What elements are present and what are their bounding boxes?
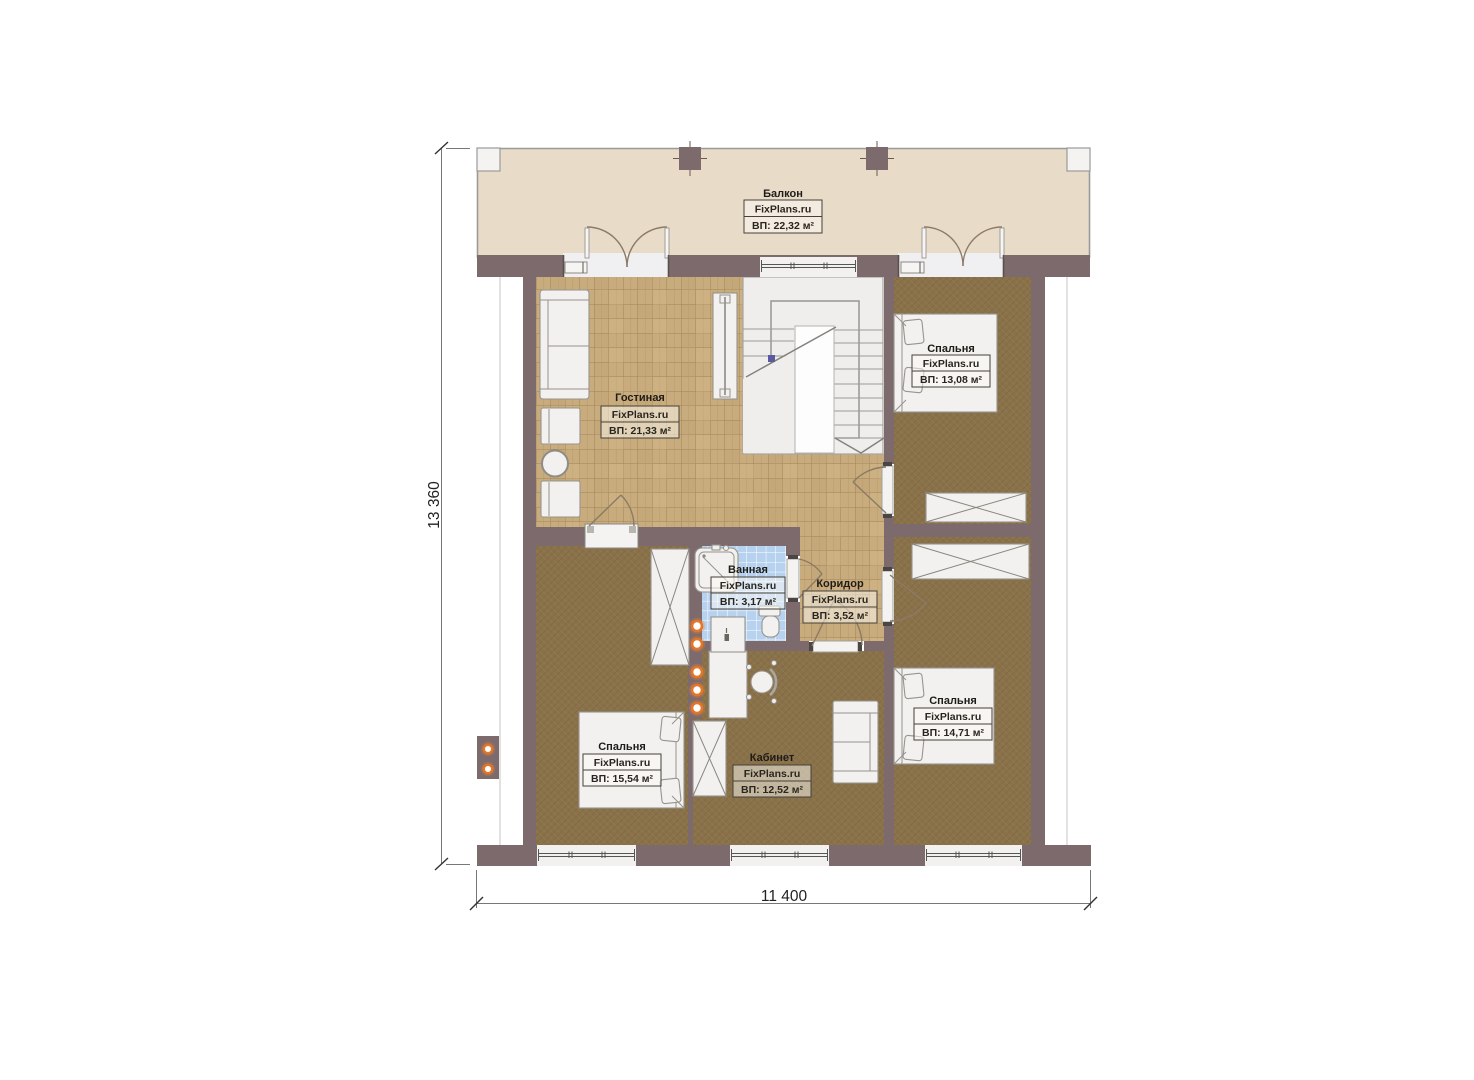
svg-text:Гостиная: Гостиная — [615, 392, 665, 404]
svg-text:ВП: 3,17 м²: ВП: 3,17 м² — [720, 596, 777, 608]
svg-text:Балкон: Балкон — [763, 188, 803, 200]
svg-text:FixPlans.ru: FixPlans.ru — [594, 757, 651, 769]
svg-text:Коридор: Коридор — [816, 578, 864, 590]
svg-text:ВП: 13,08 м²: ВП: 13,08 м² — [920, 374, 983, 386]
svg-text:FixPlans.ru: FixPlans.ru — [612, 409, 669, 421]
svg-text:ВП: 21,33 м²: ВП: 21,33 м² — [609, 425, 672, 437]
svg-text:FixPlans.ru: FixPlans.ru — [744, 768, 801, 780]
svg-text:ВП: 12,52 м²: ВП: 12,52 м² — [741, 784, 804, 796]
svg-text:FixPlans.ru: FixPlans.ru — [925, 711, 982, 723]
svg-text:FixPlans.ru: FixPlans.ru — [720, 580, 777, 592]
svg-text:Спальня: Спальня — [598, 741, 646, 753]
svg-text:FixPlans.ru: FixPlans.ru — [755, 204, 812, 216]
svg-text:13 360: 13 360 — [426, 481, 443, 529]
svg-text:11 400: 11 400 — [761, 888, 808, 905]
svg-text:FixPlans.ru: FixPlans.ru — [923, 358, 980, 370]
svg-text:FixPlans.ru: FixPlans.ru — [812, 594, 869, 606]
svg-text:ВП: 3,52 м²: ВП: 3,52 м² — [812, 610, 869, 622]
svg-text:ВП: 15,54 м²: ВП: 15,54 м² — [591, 773, 654, 785]
svg-text:Кабинет: Кабинет — [750, 752, 795, 764]
svg-text:ВП: 22,32 м²: ВП: 22,32 м² — [752, 220, 815, 232]
svg-text:Спальня: Спальня — [929, 695, 977, 707]
svg-text:Ванная: Ванная — [728, 564, 768, 576]
svg-text:ВП: 14,71 м²: ВП: 14,71 м² — [922, 727, 985, 739]
svg-text:Спальня: Спальня — [927, 343, 975, 355]
